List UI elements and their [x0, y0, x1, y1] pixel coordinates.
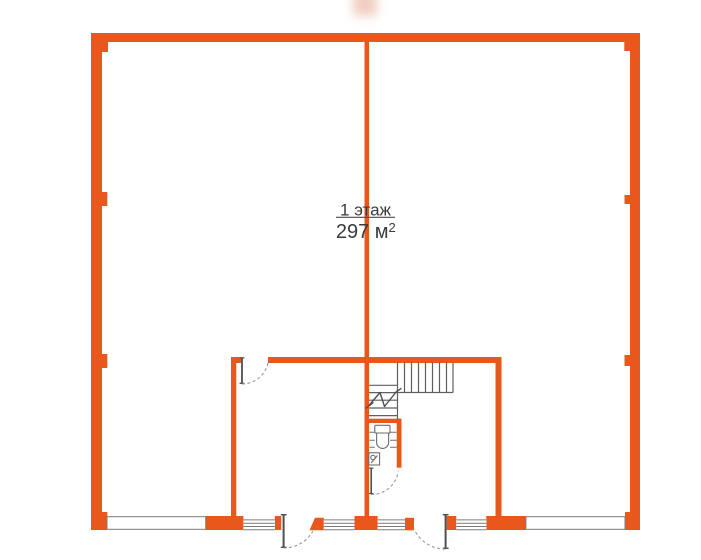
svg-text:297 м2: 297 м2: [336, 220, 396, 243]
svg-text:1 этаж: 1 этаж: [340, 201, 392, 220]
